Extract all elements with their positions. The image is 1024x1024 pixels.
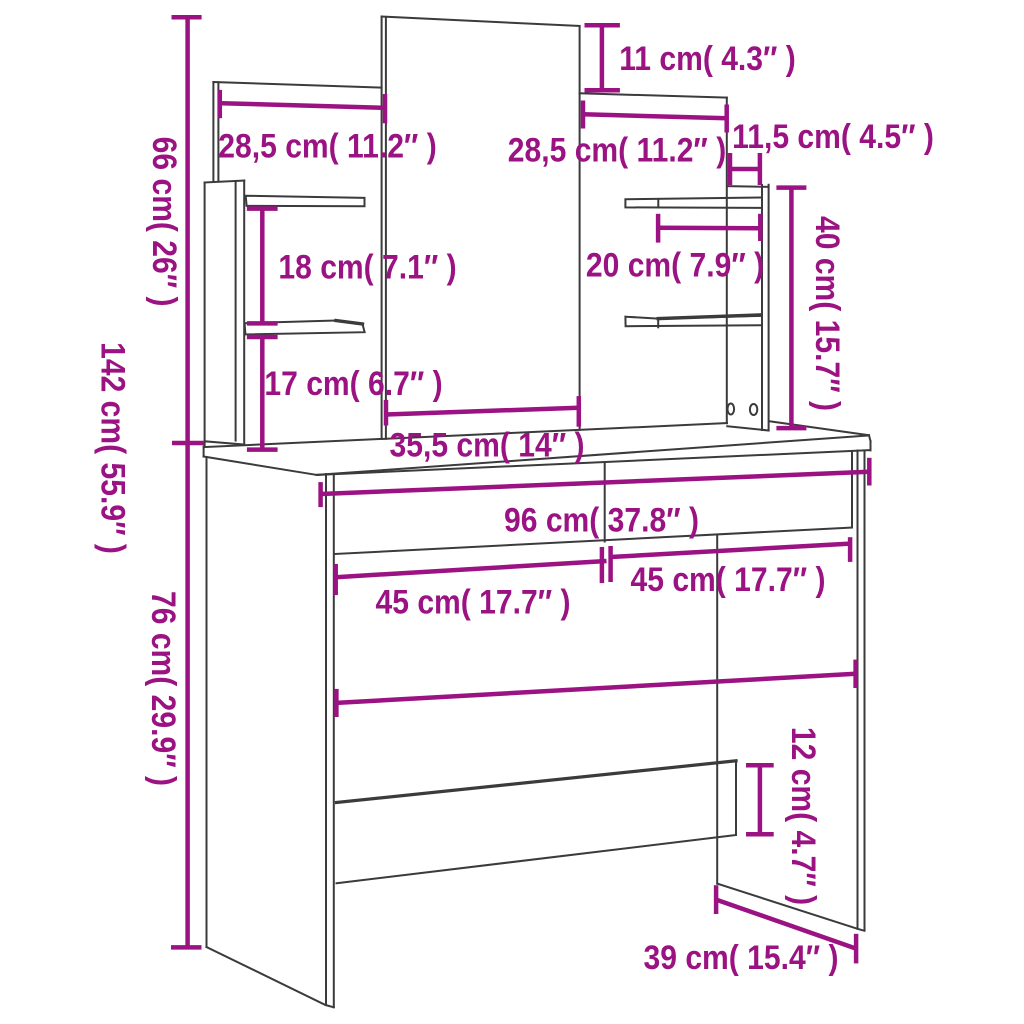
svg-text:28,5 cm( 11.2″ ): 28,5 cm( 11.2″ ) [508, 131, 726, 169]
svg-text:45 cm( 17.7″ ): 45 cm( 17.7″ ) [376, 583, 571, 621]
svg-text:17 cm( 6.7″ ): 17 cm( 6.7″ ) [264, 364, 442, 402]
svg-text:11 cm( 4.3″ ): 11 cm( 4.3″ ) [619, 39, 796, 77]
svg-text:12 cm( 4.7″ ): 12 cm( 4.7″ ) [785, 727, 823, 905]
svg-text:28,5 cm( 11.2″ ): 28,5 cm( 11.2″ ) [218, 127, 436, 165]
svg-text:40 cm( 15.7″ ): 40 cm( 15.7″ ) [809, 216, 847, 411]
svg-text:45 cm( 17.7″ ): 45 cm( 17.7″ ) [631, 560, 826, 598]
svg-text:96 cm( 37.8″ ): 96 cm( 37.8″ ) [504, 501, 699, 539]
svg-text:39 cm( 15.4″ ): 39 cm( 15.4″ ) [644, 938, 839, 976]
svg-text:20 cm( 7.9″ ): 20 cm( 7.9″ ) [586, 246, 764, 284]
svg-text:76 cm( 29.9″ ): 76 cm( 29.9″ ) [145, 591, 183, 786]
svg-text:142 cm( 55.9″ ): 142 cm( 55.9″ ) [94, 342, 132, 554]
svg-text:18 cm( 7.1″ ): 18 cm( 7.1″ ) [278, 248, 456, 286]
svg-text:11,5 cm( 4.5″ ): 11,5 cm( 4.5″ ) [732, 117, 934, 155]
svg-text:66 cm( 26″ ): 66 cm( 26″ ) [146, 137, 184, 307]
svg-text:35,5 cm( 14″ ): 35,5 cm( 14″ ) [390, 426, 585, 464]
